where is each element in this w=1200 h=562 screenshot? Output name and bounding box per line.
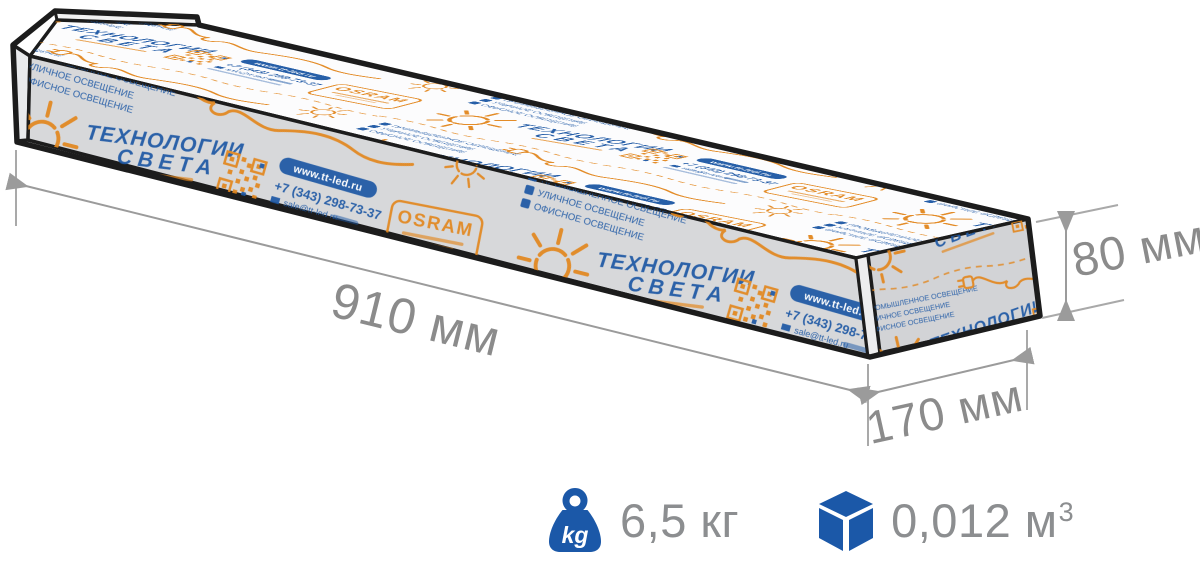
volume-exponent: 3 [1059,497,1075,527]
dimension-label-height: 80 мм [1068,209,1200,287]
package-dimensions-illustration: ТЕХНОЛОГИИ СВЕТА ПРОМЫ [0,0,1200,562]
box-drawing: ТЕХНОЛОГИИ СВЕТА ПРОМЫ [0,0,1200,562]
package-specs: kg 6,5 кг 0,012 м3 [546,487,1074,553]
volume-value: 0,012 м3 [891,493,1074,548]
extension-line-top [1036,205,1118,222]
dimension-label-length: 910 мм [326,272,506,367]
dimension-label-depth: 170 мм [861,369,1027,454]
volume-spec: 0,012 м3 [817,487,1074,553]
volume-cube-icon [817,487,875,553]
product-box [13,11,1040,357]
extension-line-bottom [1042,300,1124,318]
kg-icon-label: kg [562,522,589,548]
weight-value: 6,5 кг [620,493,739,548]
weight-kg-icon: kg [546,487,604,553]
weight-spec: kg 6,5 кг [546,487,739,553]
